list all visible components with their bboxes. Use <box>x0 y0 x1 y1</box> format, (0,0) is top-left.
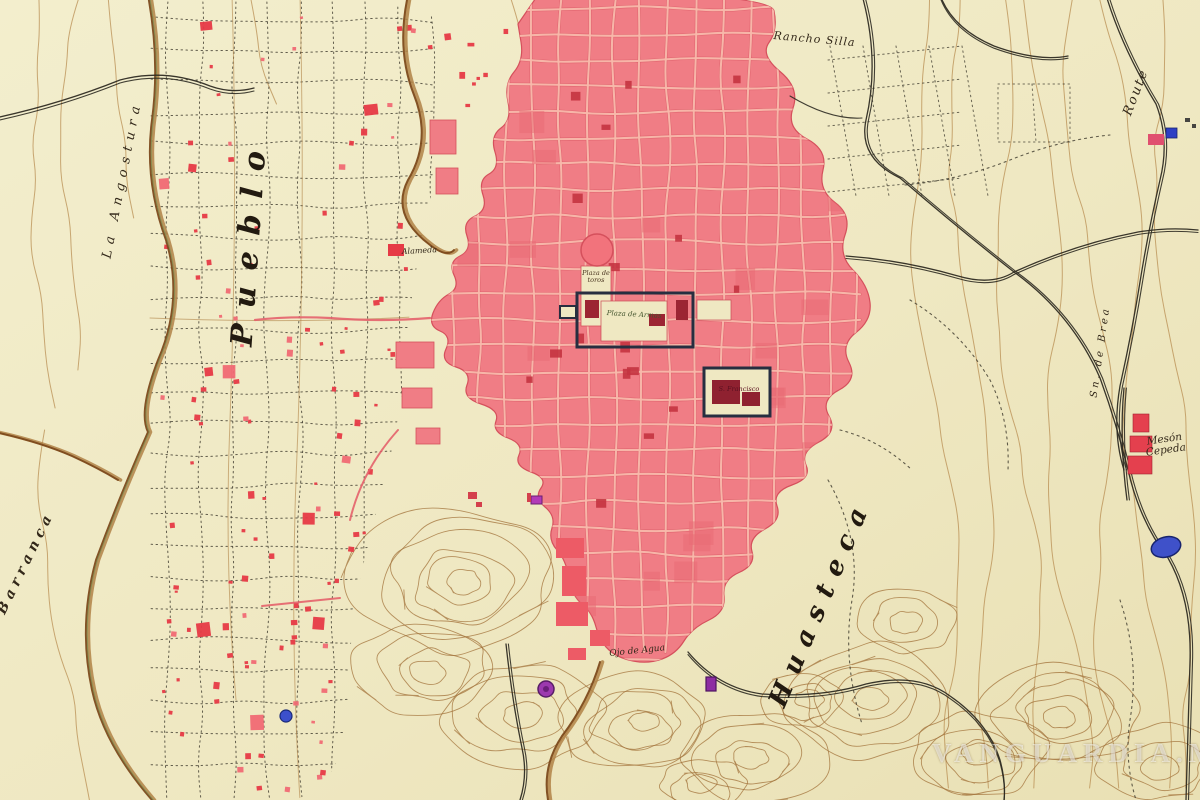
blue-spring-marker <box>280 710 292 722</box>
purple-chapel-marker <box>531 496 542 504</box>
map-canvas: Rancho Silla Route La Angostura Barranca… <box>0 0 1200 800</box>
purple-square-marker <box>706 677 716 691</box>
historical-map-drawing <box>0 0 1200 800</box>
bullring-circle <box>581 234 613 266</box>
